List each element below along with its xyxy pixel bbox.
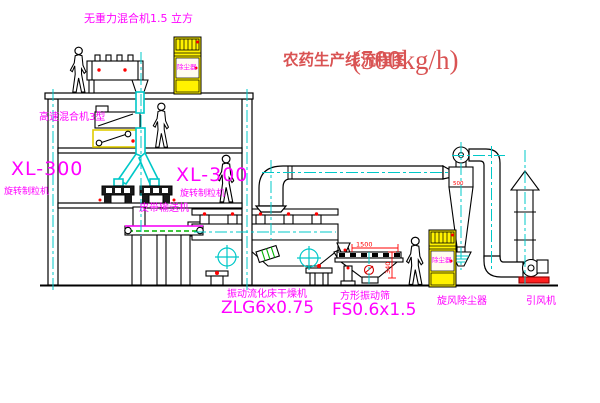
worker-figure-roof <box>70 47 86 92</box>
dim-340: 340 <box>384 262 392 274</box>
process-flow-drawing: 1500 340 500 无重力混合机1.5 立方 高速混合机3型 XL-300… <box>0 0 600 403</box>
label-granulator-model-mid: XL-300 <box>176 164 248 186</box>
worker-figure-ground <box>407 237 423 284</box>
label-granulator-model-left: XL-300 <box>11 158 83 180</box>
label-belt-conveyor: 皮带输送机 <box>139 201 189 214</box>
cyclone-outlet-duct <box>469 149 523 277</box>
granulator-middle <box>140 186 176 203</box>
label-high-speed-mixer: 高速混合机3型 <box>39 110 105 123</box>
label-granulator-name-mid: 旋转制粒机 <box>180 187 225 199</box>
label-cabinet-top: 除尘器 <box>177 62 197 71</box>
diagram-title-capacity: (500kg/h) <box>352 45 458 75</box>
dim-1500: 1500 <box>356 241 373 249</box>
label-cyclone: 旋风除尘器 <box>437 294 487 307</box>
zero-gravity-mixer <box>87 55 148 93</box>
belt-conveyor <box>125 207 203 285</box>
label-dryer-model: ZLG6x0.75 <box>221 298 314 318</box>
label-cabinet-bottom: 除尘器 <box>432 255 452 264</box>
flow-diagram-canvas: 1500 340 500 无重力混合机1.5 立方 高速混合机3型 XL-300… <box>0 0 600 403</box>
label-fan: 引风机 <box>526 294 556 307</box>
granulator-left <box>99 186 135 203</box>
fluid-bed-dryer <box>188 209 350 285</box>
worker-figure-floor2 <box>153 103 168 147</box>
label-granulator-name-left: 旋转制粒机 <box>4 185 49 197</box>
label-zero-gravity-mixer: 无重力混合机1.5 立方 <box>84 11 193 25</box>
cyclone-dim-note: 500 <box>453 181 464 187</box>
induced-draft-fan <box>519 260 549 284</box>
label-screen-model: FS0.6x1.5 <box>332 300 416 320</box>
